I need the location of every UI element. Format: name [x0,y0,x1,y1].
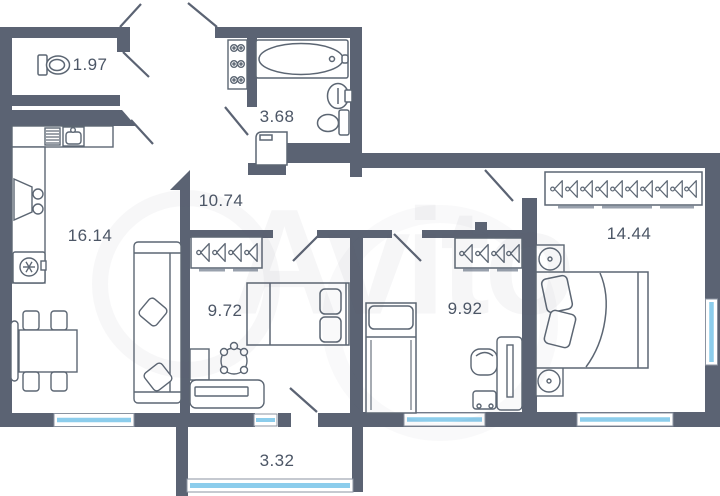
bed-icon [247,283,349,345]
room-area-label-bedroom-1: 9.72 [208,301,243,321]
bed-icon [536,272,648,368]
toilet-icon [318,110,350,135]
fridge-icon [13,252,46,283]
chair-icon [23,372,39,391]
office-chair-icon [471,349,497,375]
chair-icon [51,311,67,330]
floorplan-drawing [0,0,720,496]
room-area-label-bedroom-3: 14.44 [607,224,652,244]
room-area-label-kitchen-living: 16.14 [68,226,113,246]
room-area-label-hallway: 10.74 [199,191,244,211]
shoe-shelf-icon [228,40,247,89]
room-area-label-bathroom: 3.68 [260,107,295,127]
wardrobe-hangers-icon [191,237,262,270]
room-area-label-bedroom-2: 9.92 [448,299,483,319]
toilet-icon [38,55,70,75]
washbasin-icon [328,84,353,109]
chair-icon [51,372,67,391]
pc-printer-icon [473,391,496,409]
office-chair-icon [221,343,248,375]
chair-icon [23,311,39,330]
kitchen-sink-icon [63,127,84,146]
washing-machine-icon [256,132,287,165]
nightstand-icon [536,245,564,274]
dish-drainer-icon [45,128,60,145]
room-area-label-wc: 1.97 [73,55,108,75]
dining-table-icon [11,311,77,391]
nightstand-icon [536,366,563,396]
wardrobe-hangers-icon [455,238,522,270]
wardrobe-hangers-icon [545,172,702,207]
room-area-label-balcony: 3.32 [260,451,295,471]
floorplan-canvas: Avito 1.97 3.68 10.74 16.14 9.72 9.92 14… [0,0,720,496]
desk-icon [497,337,522,410]
sofa-icon [134,242,181,403]
bathtub-icon [256,40,348,78]
bed-icon [366,303,416,413]
